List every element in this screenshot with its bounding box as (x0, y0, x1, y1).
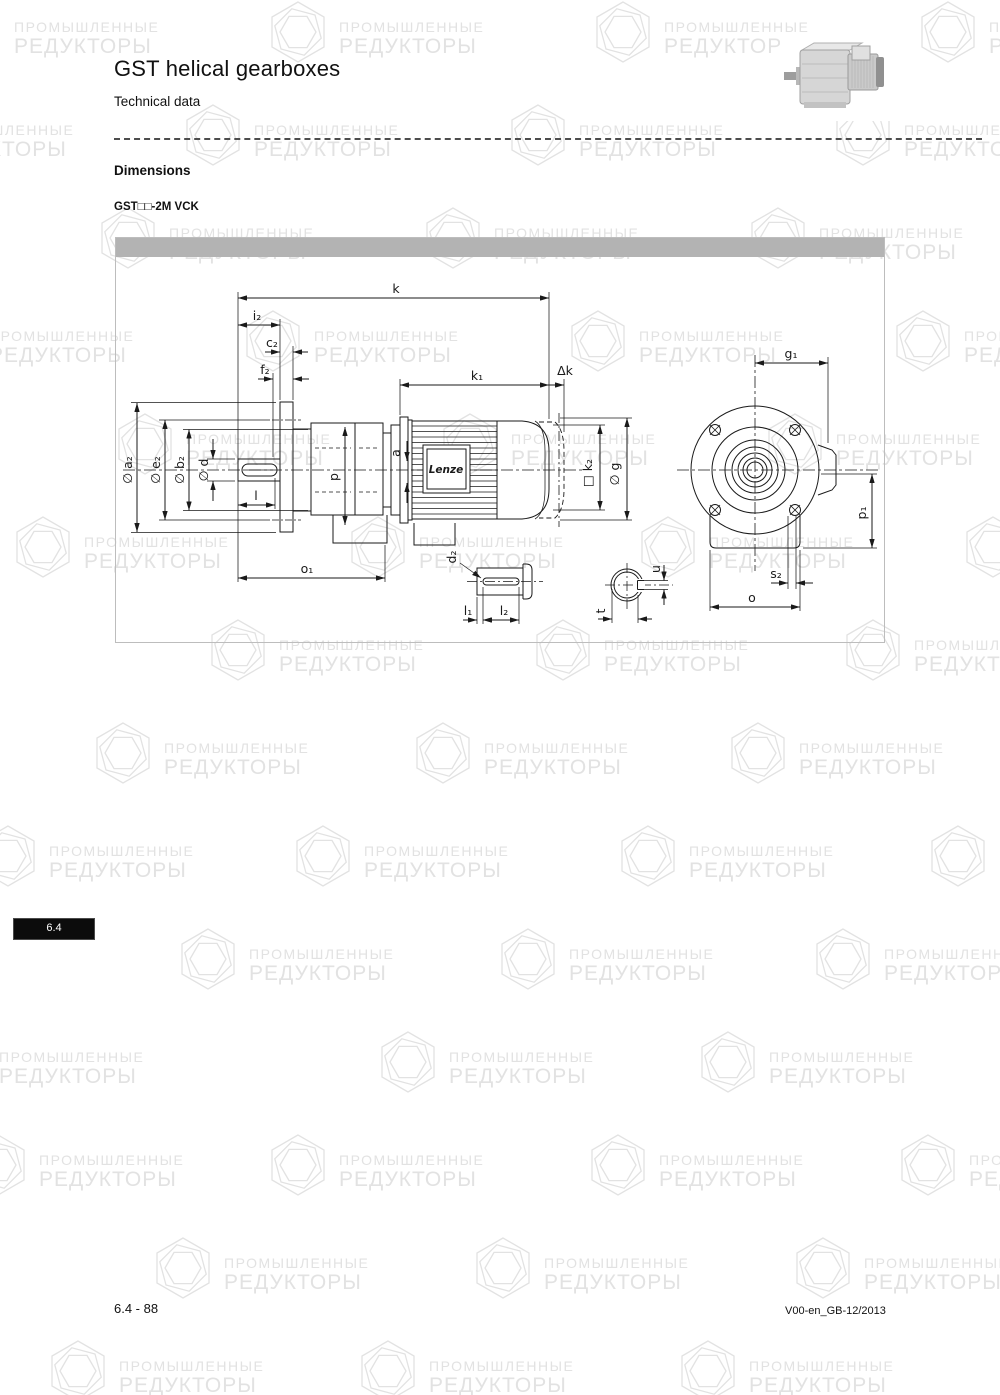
dim-label-f2: f₂ (260, 362, 269, 377)
dim-label-db2: ∅ b₂ (172, 456, 187, 484)
dim-label-t: t (593, 608, 608, 613)
dim-label-l2: l₂ (500, 603, 508, 618)
dim-label-g1: g₁ (785, 346, 798, 361)
product-photo (780, 36, 900, 121)
dim-label-o1: o₁ (301, 561, 314, 576)
technical-drawing: Lenze (115, 237, 885, 643)
section-heading: Dimensions (114, 163, 191, 178)
brand-label: Lenze (429, 464, 464, 476)
page-title: GST helical gearboxes (114, 56, 340, 82)
dim-label-dd: ∅ d (196, 459, 211, 482)
model-label: GST□□-2M VCK (114, 201, 199, 213)
dim-label-k: k (392, 281, 400, 296)
footer-page-number: 6.4 - 88 (114, 1301, 158, 1316)
drawing-header-bar (116, 238, 884, 257)
dim-label-c2: c₂ (266, 335, 278, 350)
dim-label-dk: Δk (557, 363, 574, 378)
dim-label-de2: ∅ e₂ (148, 456, 163, 484)
detail-shaft-key-labels: d₂ l₁ l₂ (444, 551, 508, 618)
side-view: Lenze (123, 402, 585, 545)
section-tab: 6.4 (13, 918, 95, 940)
dim-label-p1: p₁ (854, 507, 869, 520)
side-view-labels: k i₂ c₂ f₂ k₁ Δk ∅ a₂ ∅ e₂ ∅ b₂ ∅ d l p … (120, 281, 622, 576)
dim-label-i2: i₂ (253, 308, 261, 323)
dim-label-l1: l₁ (464, 603, 472, 618)
page-subtitle: Technical data (114, 94, 200, 109)
dim-label-l: l (254, 488, 257, 503)
footer-version: V00-en_GB-12/2013 (785, 1305, 886, 1317)
catalog-page: ПРОМЫШЛЕННЫЕРЕДУКТОРЫПРОМЫШЛЕННЫЕРЕДУКТО… (0, 0, 1000, 1395)
dim-label-s2: s₂ (770, 566, 782, 581)
dim-label-k2: □ k₂ (580, 459, 595, 487)
dim-label-o: o (748, 590, 756, 605)
dim-label-d2: d₂ (444, 551, 459, 564)
side-view-dimensions (131, 292, 632, 582)
front-view-labels: g₁ p₁ s₂ o (748, 346, 869, 605)
dim-label-u: u (648, 565, 663, 573)
dim-label-a: a (388, 449, 403, 457)
dim-label-dg: ∅ g (607, 463, 622, 486)
dim-label-k1: k₁ (471, 368, 483, 383)
dim-label-p: p (326, 473, 341, 481)
separator-dashed-line (114, 138, 982, 140)
dim-label-da2: ∅ a₂ (120, 456, 135, 484)
